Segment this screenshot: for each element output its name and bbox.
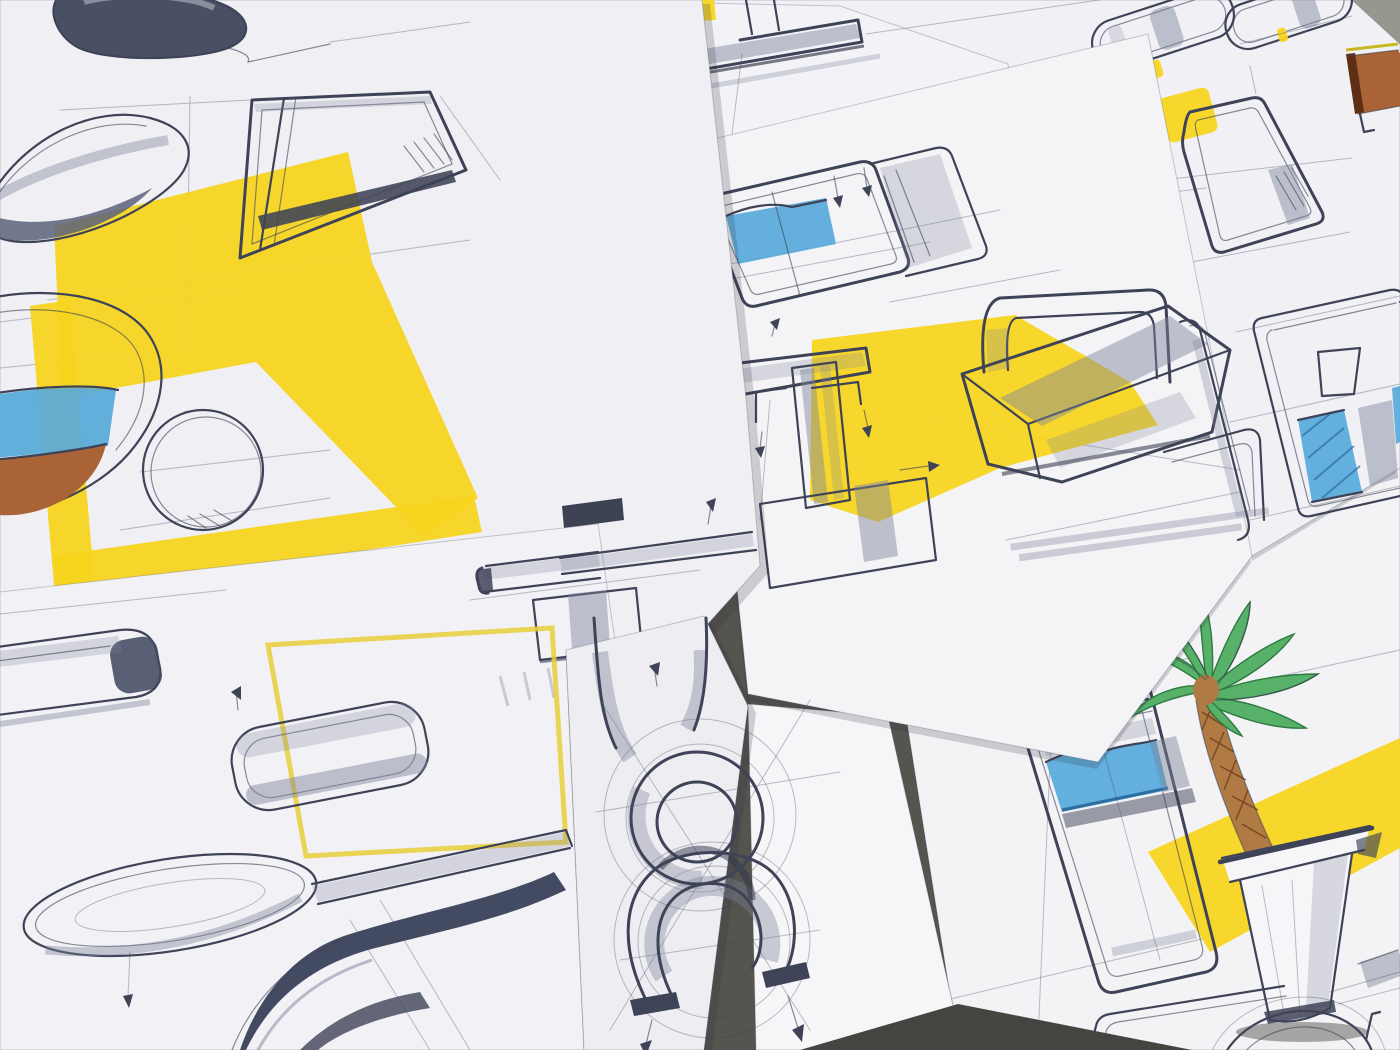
sketch-photo — [0, 0, 1400, 1050]
sketch-photo-canvas — [0, 0, 1400, 1050]
